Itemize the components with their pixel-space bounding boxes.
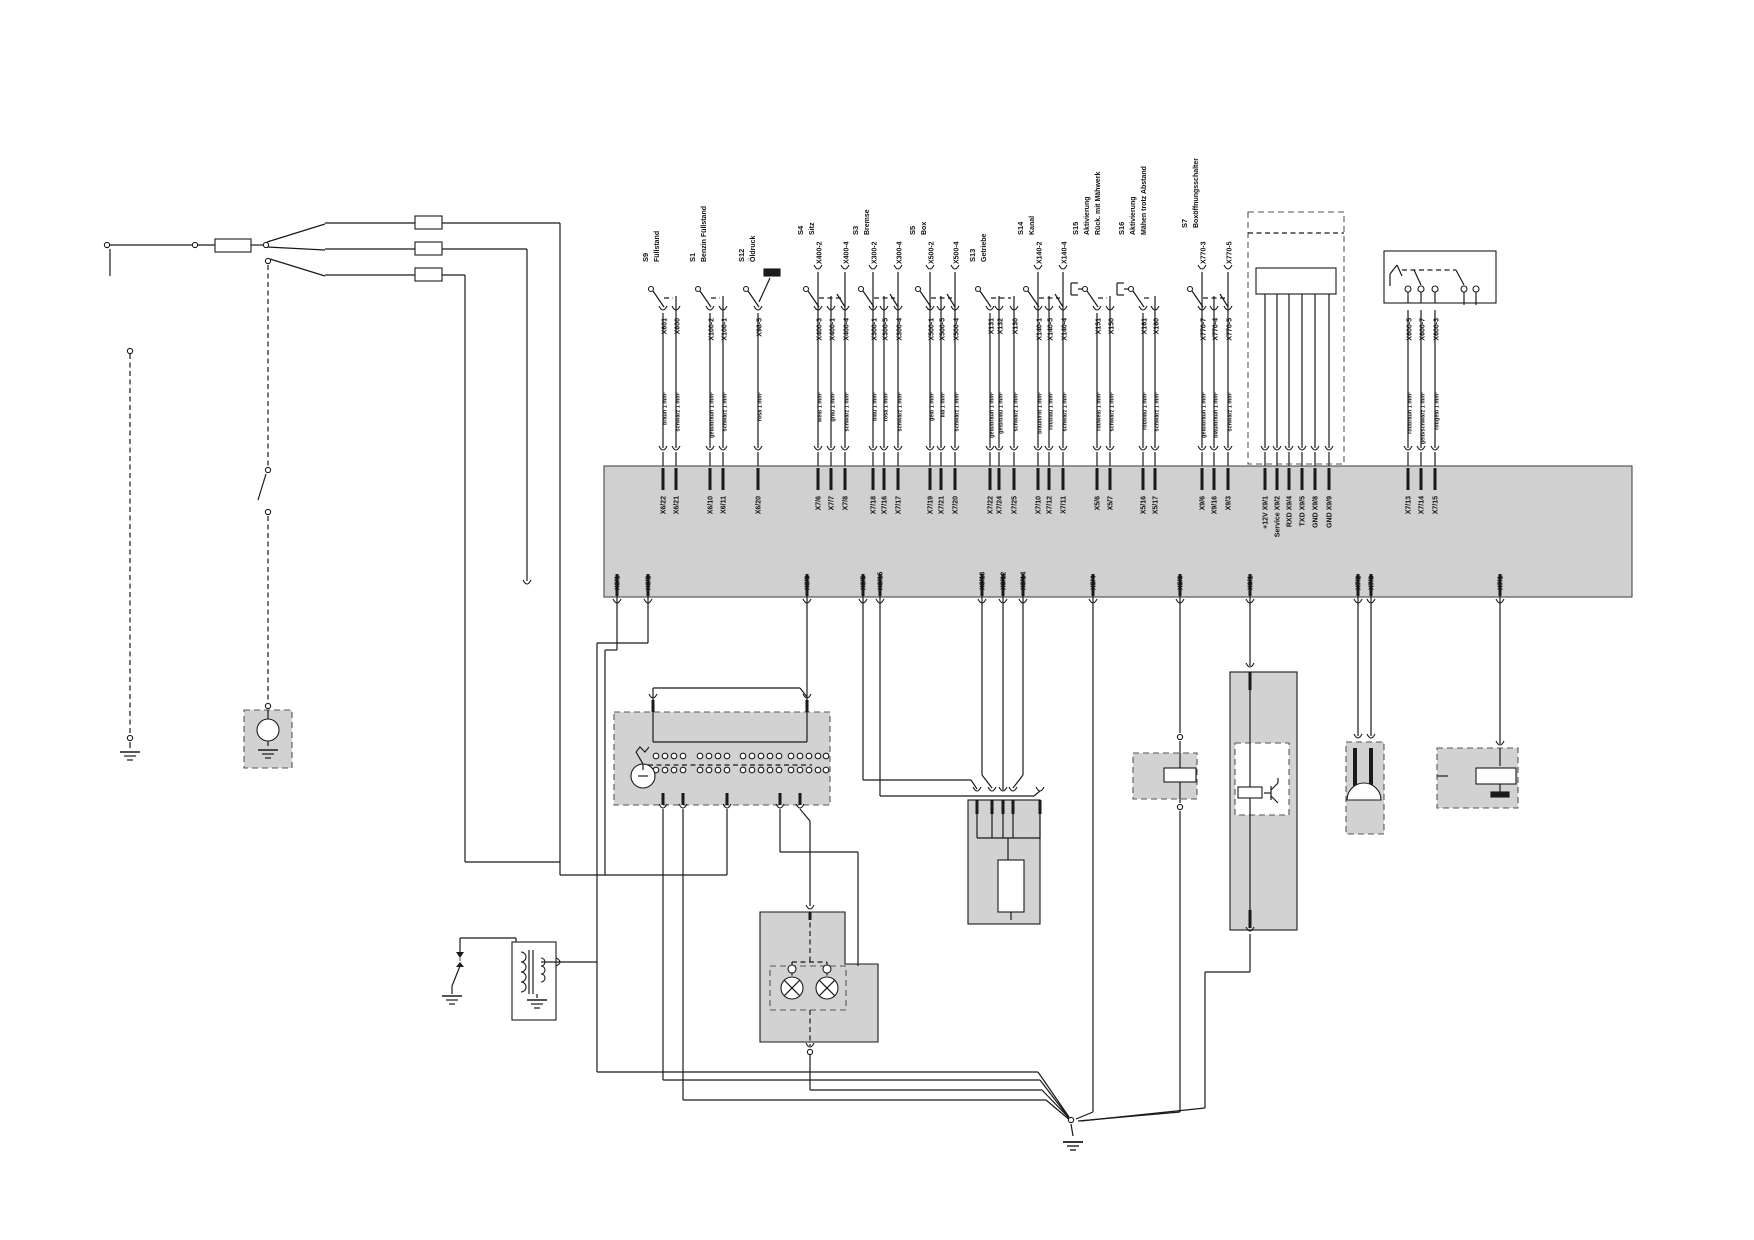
m1-actuator — [998, 860, 1024, 912]
bus-pin-label: X7/7 — [829, 496, 836, 511]
switch-contact — [980, 291, 991, 307]
connector-label: X140-4 — [1062, 241, 1069, 264]
connector-label: X770-5 — [1227, 318, 1234, 341]
switch-name: Getriebe — [981, 233, 988, 262]
connector-node — [265, 467, 270, 472]
switch-contact — [863, 291, 874, 307]
switch-name: S7 — [1180, 219, 1189, 228]
connector-label: X132 — [998, 318, 1005, 334]
bus-pin-label: X8/15 — [878, 572, 885, 590]
bus-pin-label: X5/16 — [1141, 496, 1148, 514]
bus-pin-label: Service X9/2 — [1275, 496, 1282, 537]
wire — [1046, 1100, 1071, 1121]
ignition-contact — [797, 767, 803, 773]
bus-pin-label: X6/11 — [721, 496, 728, 514]
connector-node — [1177, 804, 1182, 809]
connector-cup — [841, 265, 849, 269]
bus-pin-label: GND X9/8 — [1313, 496, 1320, 528]
wire — [800, 809, 810, 821]
ignition-contact — [706, 753, 712, 759]
ignition-contact — [758, 753, 764, 759]
switch-contact — [759, 278, 770, 302]
switch-contact — [1133, 291, 1144, 307]
bus-pin-label: X7/25 — [1012, 496, 1019, 514]
switch-name: Benzin Füllstand — [701, 206, 708, 262]
connector-label: X150 — [1109, 318, 1116, 334]
connector-label: X140-2 — [1037, 241, 1044, 264]
connector-node — [104, 242, 109, 247]
switch-name: S13 — [968, 249, 977, 262]
wire-color-label: rosa 1 mm² — [883, 392, 890, 422]
connector-label: X140-1 — [1037, 318, 1044, 341]
bus-pin-label: X7/3 — [1369, 575, 1376, 590]
wire-color-label: gelb/braun 1 mm² — [709, 392, 716, 438]
connector-cup — [1059, 265, 1067, 269]
connector-cup — [951, 265, 959, 269]
ignition-contact — [806, 753, 812, 759]
switch-name: S1 — [688, 253, 697, 262]
ignition-contact — [823, 767, 829, 773]
connector-label: X600-3 — [1434, 318, 1441, 341]
connector-cup — [1224, 265, 1232, 269]
connector-node — [263, 242, 268, 247]
component-S8-maehdeck — [1384, 251, 1496, 303]
wire-color-label: schwarz 1 mm² — [1013, 392, 1020, 432]
wire — [1034, 791, 1040, 796]
wire-color-label: rosa 1 mm² — [757, 392, 764, 422]
ignition-contact — [767, 767, 773, 773]
wire-color-label: schwarz 1 mm² — [1109, 392, 1116, 432]
ignition-contact — [697, 767, 703, 773]
ignition-contact — [740, 767, 746, 773]
switch-name: Füllstand — [654, 231, 661, 262]
switch-name: Box — [921, 222, 928, 235]
wiring-diagram: X6/22X6/21X6/10X6/11X6/20X7/6X7/7X7/8X7/… — [0, 0, 1754, 1240]
k2-coil — [1238, 787, 1262, 798]
bus-pin-label: X5/3 — [1178, 575, 1185, 590]
wire — [1076, 1112, 1093, 1119]
wire-color-label: braun 1 mm² — [662, 392, 669, 425]
bus-pin-label: X8/2 — [646, 575, 653, 590]
bus-pin-label: X6/21 — [674, 496, 681, 514]
switch-contact — [1192, 291, 1203, 307]
wire-color-label: rot/weiß 1 mm² — [1096, 392, 1103, 431]
wire — [1038, 1072, 1069, 1117]
wire-color-label: schwarz 1 mm² — [954, 392, 961, 432]
ignition-contact — [671, 767, 677, 773]
wire-color-label: gelb 1 mm² — [929, 392, 936, 421]
connector-label: X400-2 — [817, 241, 824, 264]
wire — [258, 474, 266, 500]
wire — [982, 775, 992, 788]
ignition-contact — [815, 753, 821, 759]
wire — [267, 224, 325, 242]
wire — [452, 966, 460, 986]
ignition-contact — [749, 753, 755, 759]
switch-contact — [947, 294, 955, 307]
bus-pin-label: X5/4 — [1091, 575, 1098, 590]
ignition-contact — [715, 753, 721, 759]
bus-pin-label: X7/10 — [1036, 496, 1043, 514]
ignition-contact — [815, 767, 821, 773]
switch-contact — [700, 291, 711, 307]
lamp-socket — [788, 965, 796, 973]
bus-pin-label: X7/14 — [1419, 496, 1426, 514]
k1-coil — [1164, 768, 1196, 782]
connector-label: X500-4 — [954, 241, 961, 264]
ignition-contact — [767, 753, 773, 759]
switch-pivot — [1024, 287, 1029, 292]
component-K2 — [1235, 743, 1289, 815]
bus-pin-label: X7/18 — [871, 496, 878, 514]
connector-label: X770-4 — [1213, 318, 1220, 341]
bus-pin-label: X8/12 — [1001, 572, 1008, 590]
wire — [1081, 1108, 1205, 1121]
connector-label: X770-3 — [1201, 241, 1208, 264]
connector-label: X500-5 — [940, 318, 947, 341]
connector-cup — [894, 265, 902, 269]
switch-contact — [837, 294, 845, 307]
wire-color-label: weiß 1 mm² — [817, 392, 824, 423]
fuse-F2 — [415, 242, 442, 255]
connector-label: X300-2 — [872, 241, 879, 264]
ignition-switch-block — [614, 712, 830, 805]
wire-color-label: schwarz 1 mm² — [1227, 392, 1234, 432]
bus-pin-label: X7/1 — [1498, 575, 1505, 590]
wire-color-label: gelb/braun 1 mm² — [989, 392, 996, 438]
switch-name: Aktivierung — [1084, 196, 1091, 235]
bus-pin-label: X8/14 — [1021, 572, 1028, 590]
ignition-contact — [724, 753, 730, 759]
wire — [1042, 1090, 1070, 1119]
connector-node — [807, 1049, 812, 1054]
bus-pin-label: X5/17 — [1153, 496, 1160, 514]
switch-contact — [1220, 294, 1228, 307]
connector-cup — [869, 265, 877, 269]
connector-label: X400-1 — [830, 318, 837, 341]
ignition-contact — [671, 753, 677, 759]
bus-pin-label: X7/21 — [939, 496, 946, 514]
bus-pin-label: X7/19 — [928, 496, 935, 514]
bus-pin-label: X7/17 — [896, 496, 903, 514]
switch-name: S4 — [796, 225, 805, 235]
switch-contact — [920, 291, 931, 307]
connector-label: X300-5 — [883, 318, 890, 341]
wire-color-label: rot/gelb 1 mm² — [1434, 392, 1441, 430]
bus-pin-label: X6/22 — [661, 496, 668, 514]
connector-node — [265, 509, 270, 514]
bus-pin-label: X8/13 — [980, 572, 987, 590]
bus-pin-label: X7/13 — [1406, 496, 1413, 514]
bus-pin-label: X7/2 — [1356, 575, 1363, 590]
ignition-contact — [715, 767, 721, 773]
schematic-canvas: X6/22X6/21X6/10X6/11X6/20X7/6X7/7X7/8X7/… — [0, 0, 1754, 1240]
bus-pin-label: X9/1 — [1248, 575, 1255, 590]
connector-label: X300-4 — [897, 241, 904, 264]
switch-name: S12 — [737, 249, 746, 262]
ignition-contact — [662, 753, 668, 759]
wire — [1040, 1080, 1069, 1118]
switch-contact — [1087, 291, 1098, 307]
spark-gap-top — [456, 952, 464, 958]
wire-color-label: gelb/braun 1 mm² — [1201, 392, 1208, 438]
switch-contact — [808, 291, 819, 307]
connector-cup — [926, 265, 934, 269]
ignition-contact — [680, 753, 686, 759]
switch-pivot — [649, 287, 654, 292]
ignition-contact — [653, 753, 659, 759]
fuse-F0 — [215, 239, 251, 252]
connector-node — [192, 242, 197, 247]
wire-color-label: blau 1 mm² — [872, 392, 879, 421]
connector-label: X600 — [675, 318, 682, 334]
wire-color-label: grau 1 mm² — [830, 392, 837, 422]
connector-node — [127, 348, 132, 353]
ignition-contact — [749, 767, 755, 773]
deck-contact — [1461, 286, 1467, 292]
switch-name: Boxöffnungsschalter — [1193, 158, 1200, 228]
bus-pin-label: X7/16 — [882, 496, 889, 514]
switch-name: S14 — [1016, 221, 1025, 235]
switch-pivot — [1188, 287, 1193, 292]
bus-pin-label: X6/10 — [708, 496, 715, 514]
wire — [270, 259, 325, 276]
connector-label: X131 — [989, 318, 996, 334]
wire-color-label: rot/blau 1 mm² — [1048, 392, 1055, 430]
connector-label: X400-4 — [844, 241, 851, 264]
connector-node — [127, 735, 132, 740]
ignition-contact — [806, 767, 812, 773]
switch-pivot — [1129, 287, 1134, 292]
switch-name: Sitz — [809, 222, 816, 235]
ignition-contact — [776, 767, 782, 773]
ignition-contact — [788, 753, 794, 759]
wire-color-label: schwarz 1 mm² — [1154, 392, 1161, 432]
bus-pin-label: X7/22 — [988, 496, 995, 514]
switch-contact — [890, 294, 898, 307]
deck-contact — [1473, 286, 1479, 292]
wire-color-label: lila 1 mm² — [940, 392, 947, 418]
switch-name: S9 — [641, 253, 650, 262]
wire-color-label: schwarz 1 mm² — [722, 392, 729, 432]
ignition-contact — [662, 767, 668, 773]
bus-pin-label: TXD X9/5 — [1300, 496, 1307, 526]
connector-label: X500-2 — [929, 241, 936, 264]
switch-name: Kanal — [1029, 216, 1036, 235]
connector-node — [265, 703, 270, 708]
k3-ground-bar — [1491, 792, 1509, 797]
connector-cup — [1034, 265, 1042, 269]
connector-label: X300-1 — [872, 318, 879, 341]
connector-label: X161 — [1142, 318, 1149, 334]
wire-color-label: gelb/blau 1 mm² — [998, 392, 1005, 434]
deck-contact — [1432, 286, 1438, 292]
wire-color-label: gelb/schwarz 1 mm² — [1420, 392, 1427, 444]
bus-pin-label: X8/1 — [615, 575, 622, 590]
switch-contact — [748, 291, 759, 307]
switch-pivot — [1083, 287, 1088, 292]
bus-pin-label: X7/15 — [1433, 496, 1440, 514]
connector-label: X601 — [662, 318, 669, 334]
wire — [267, 247, 325, 250]
connector-node — [1177, 734, 1182, 739]
ignition-contact — [680, 767, 686, 773]
connector-label: X140-4 — [1062, 318, 1069, 341]
wire-color-label: schwarz 1 mm² — [897, 392, 904, 432]
bus-pin-label: X7/12 — [1047, 496, 1054, 514]
connector-label: X400-3 — [817, 318, 824, 341]
connector-label: X400-4 — [844, 318, 851, 341]
bus-pin-label: X9/16 — [1212, 496, 1219, 514]
ignition-contact — [740, 753, 746, 759]
ignition-contact — [697, 753, 703, 759]
bus-pin-label: X9/3 — [1226, 496, 1233, 511]
bus-pin-label: X5/6 — [1095, 496, 1102, 511]
k3-coil — [1476, 768, 1516, 784]
wire-color-label: braun/rot 1 mm² — [1037, 392, 1044, 434]
bus-pin-label: GND X9/9 — [1327, 496, 1334, 528]
ignition-contact — [706, 767, 712, 773]
bus-pin-label: X8/5 — [861, 575, 868, 590]
fuse-F1 — [415, 216, 442, 229]
connector-label: X770-5 — [1227, 241, 1234, 264]
switch-contact — [1028, 291, 1039, 307]
bus-pin-label: RXD X9/4 — [1287, 496, 1294, 527]
connector-node — [1068, 1117, 1073, 1122]
switch-name: Rück. mit Mähwerk — [1095, 171, 1102, 235]
lamp-socket — [823, 965, 831, 973]
switch-name: Mähen trotz Abstand — [1141, 166, 1148, 235]
connector-label: X100-2 — [709, 318, 716, 341]
wire-color-label: rot/braun 1 mm² — [1407, 392, 1414, 434]
ignition-contact — [776, 753, 782, 759]
switch-name: Öldruck — [748, 235, 757, 262]
connector-cup — [1036, 787, 1044, 791]
bus-pin-label: X7/6 — [816, 496, 823, 511]
deck-contact — [1418, 286, 1424, 292]
connector-label: X500-4 — [954, 318, 961, 341]
wire-color-label: schwarz 1 mm² — [1062, 392, 1069, 432]
bus-pin-label: X7/20 — [953, 496, 960, 514]
switch-pivot — [804, 287, 809, 292]
wire-color-label: blau/braun 1 mm² — [1213, 392, 1220, 438]
switch-contact — [1055, 294, 1063, 307]
switch-pivot — [859, 287, 864, 292]
s17-sensor-block — [1256, 268, 1336, 294]
wire — [1013, 775, 1023, 788]
deck-contact — [1405, 286, 1411, 292]
connector-label: X140-5 — [1048, 318, 1055, 341]
connector-label: X98-5 — [757, 318, 764, 337]
ignition-contact — [823, 753, 829, 759]
switch-pivot — [916, 287, 921, 292]
ignition-contact — [724, 767, 730, 773]
bus-pin-label: X6/20 — [756, 496, 763, 514]
motor-icon — [257, 719, 279, 741]
connector-cup — [814, 265, 822, 269]
connector-label: X160 — [1154, 318, 1161, 334]
switch-name: Bremse — [864, 209, 871, 235]
bus-pin-label: X9/6 — [1200, 496, 1207, 511]
bus-pin-label: X5/7 — [1108, 496, 1115, 511]
bus-pin-label: X7/24 — [997, 496, 1004, 514]
switch-pivot — [744, 287, 749, 292]
ignition-contact — [797, 753, 803, 759]
fuse-F3 — [415, 268, 442, 281]
switch-name: Aktivierung — [1130, 196, 1137, 235]
pressure-switch-icon — [764, 269, 780, 276]
switch-pivot — [976, 287, 981, 292]
switch-name: S3 — [851, 226, 860, 235]
switch-name: S16 — [1117, 222, 1126, 235]
connector-label: X300-4 — [897, 318, 904, 341]
ignition-contact — [788, 767, 794, 773]
connector-label: X770-7 — [1201, 318, 1208, 341]
connector-node — [265, 258, 270, 263]
bus-pin-label: X7/8 — [843, 496, 850, 511]
ignition-contact — [758, 767, 764, 773]
connector-label: X100-1 — [722, 318, 729, 341]
wire — [971, 780, 977, 789]
switch-name: S5 — [908, 226, 917, 235]
licht-kabelbaum-box — [760, 912, 878, 1042]
bus-pin-label: X8/3 — [805, 575, 812, 590]
bus-pin-label: X7/11 — [1061, 496, 1068, 514]
connector-cup — [1198, 265, 1206, 269]
connector-label: X151 — [1096, 318, 1103, 334]
connector-label: X130 — [1013, 318, 1020, 334]
switch-name: S15 — [1071, 222, 1080, 235]
switch-contact — [653, 291, 664, 307]
connector-label: X500-1 — [929, 318, 936, 341]
connector-label: X600-7 — [1420, 318, 1427, 341]
connector-label: X600-5 — [1407, 318, 1414, 341]
wire-color-label: rot/blau 1 mm² — [1142, 392, 1149, 430]
ground-lead — [1071, 1124, 1073, 1136]
wire-color-label: schwarz 1 mm² — [675, 392, 682, 432]
switch-pivot — [696, 287, 701, 292]
bus-pin-label: +12V X9/1 — [1263, 496, 1270, 529]
wire-color-label: schwarz 1 mm² — [844, 392, 851, 432]
